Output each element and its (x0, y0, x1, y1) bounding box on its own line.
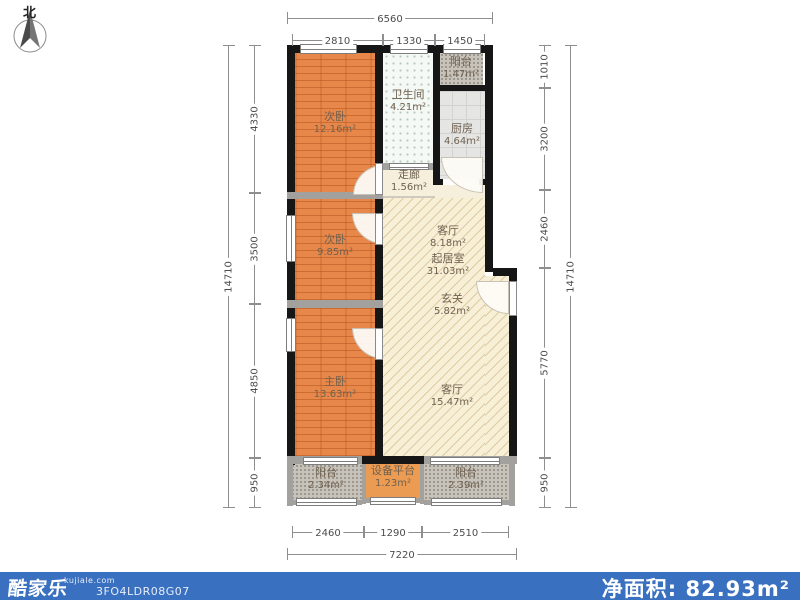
room-label: 阳台 2.34m² (308, 466, 344, 492)
footer-bar: 酷家乐 kujiale.com 3FO4LDR08G07 净面积: 82.93m… (0, 572, 800, 600)
door-leaf-bedroom-2 (375, 213, 383, 245)
room-area: 9.85m² (317, 246, 353, 259)
wall (383, 196, 435, 198)
dimension-top-segment: 2810 (292, 30, 383, 41)
net-area: 净面积: 82.93m² (602, 573, 790, 600)
room-label: 主卧 13.63m² (314, 375, 356, 401)
dimension-bottom-segment: 2460 (292, 522, 364, 533)
dimension-top-segment: 1330 (383, 30, 435, 41)
room-name: 起居室 (427, 252, 469, 265)
dimension-top-total: 6560 (287, 8, 493, 19)
room-label: 起居室 31.03m² (427, 252, 469, 278)
room-name: 玄关 (434, 292, 470, 305)
window (430, 457, 500, 465)
room-label: 厨房 4.64m² (444, 122, 480, 148)
room-area: 1.47m² (443, 68, 479, 81)
window (303, 457, 358, 465)
dimension-right-segment: 1010 (544, 45, 555, 88)
dimension-right-segment: 3200 (544, 88, 555, 190)
dimension-bottom-segment: 2510 (422, 522, 509, 533)
room-name: 次卧 (314, 110, 356, 123)
dimension-bottom-total: 7220 (287, 544, 517, 555)
room-label: 客厅 15.47m² (431, 383, 473, 409)
room-area: 1.23m² (371, 477, 415, 490)
kujiale-logo: 酷家乐 (7, 574, 70, 600)
dimension-right-segment: 950 (544, 458, 555, 508)
wall (420, 464, 424, 504)
room-area: 4.21m² (390, 101, 426, 114)
dimension-right-segment: 5770 (544, 268, 555, 458)
room-area: 4.64m² (444, 135, 480, 148)
room-area: 1.56m² (391, 181, 427, 194)
wall (375, 45, 383, 456)
dimension-left-segment: 950 (254, 458, 265, 508)
room-label: 次卧 12.16m² (314, 110, 356, 136)
room-label: 玄关 5.82m² (434, 292, 470, 318)
wall (362, 456, 424, 464)
wall (287, 300, 383, 308)
window (286, 318, 296, 352)
room-label: 设备平台 1.23m² (371, 464, 415, 490)
room-area: 8.18m² (430, 237, 466, 250)
room-area: 12.16m² (314, 123, 356, 136)
window (431, 498, 502, 506)
room-label: 客厅 8.18m² (430, 224, 466, 250)
room-name: 客厅 (430, 224, 466, 237)
window (296, 498, 357, 506)
dimension-right-total: 14710 (570, 45, 581, 508)
window (370, 497, 416, 505)
room-name: 走廊 (391, 168, 427, 181)
wall (433, 53, 440, 185)
room-name: 客厅 (431, 383, 473, 396)
dimension-left-total: 14710 (228, 45, 239, 508)
room-name: 卫生间 (390, 88, 426, 101)
room-area: 5.82m² (434, 305, 470, 318)
dimension-top-segment: 1450 (435, 30, 485, 41)
dimension-bottom-segment: 1290 (364, 522, 422, 533)
room-area: 13.63m² (314, 388, 356, 401)
door-leaf-master-bedroom (375, 328, 383, 360)
kujiale-domain: kujiale.com (64, 576, 115, 585)
room-name: 次卧 (317, 233, 353, 246)
north-label: 北 (23, 2, 36, 21)
room-name: 阳台 (443, 55, 479, 68)
room-name: 厨房 (444, 122, 480, 135)
room-area: 2.34m² (308, 479, 344, 492)
door-leaf-bedroom-1 (375, 163, 383, 195)
dimension-left-segment: 4850 (254, 304, 265, 458)
room-name: 主卧 (314, 375, 356, 388)
wall (509, 464, 515, 506)
room-label: 走廊 1.56m² (391, 168, 427, 194)
room-name: 阳台 (308, 466, 344, 479)
dimension-left-segment: 4330 (254, 45, 265, 193)
room-name: 设备平台 (371, 464, 415, 477)
room-area: 31.03m² (427, 265, 469, 278)
net-area-label: 净面积: (602, 577, 677, 600)
north-compass: 北 (6, 2, 58, 58)
window (286, 215, 296, 262)
room-label: 卫生间 4.21m² (390, 88, 426, 114)
wall (435, 179, 443, 185)
floorplan-canvas: 北 (0, 0, 800, 600)
room-area: 2.39m² (448, 479, 484, 492)
wall (485, 45, 493, 272)
plan-code: 3FO4LDR08G07 (96, 585, 190, 598)
dimension-left-segment: 3500 (254, 193, 265, 304)
room-label: 阳台 1.47m² (443, 55, 479, 81)
room-name: 阳台 (448, 466, 484, 479)
dimension-right-segment: 2460 (544, 190, 555, 268)
room-label: 阳台 2.39m² (448, 466, 484, 492)
room-area: 15.47m² (431, 396, 473, 409)
room-label: 次卧 9.85m² (317, 233, 353, 259)
wall (493, 268, 517, 276)
wall (433, 85, 491, 91)
door-leaf-entrance (509, 281, 517, 316)
net-area-value: 82.93m² (685, 577, 790, 600)
